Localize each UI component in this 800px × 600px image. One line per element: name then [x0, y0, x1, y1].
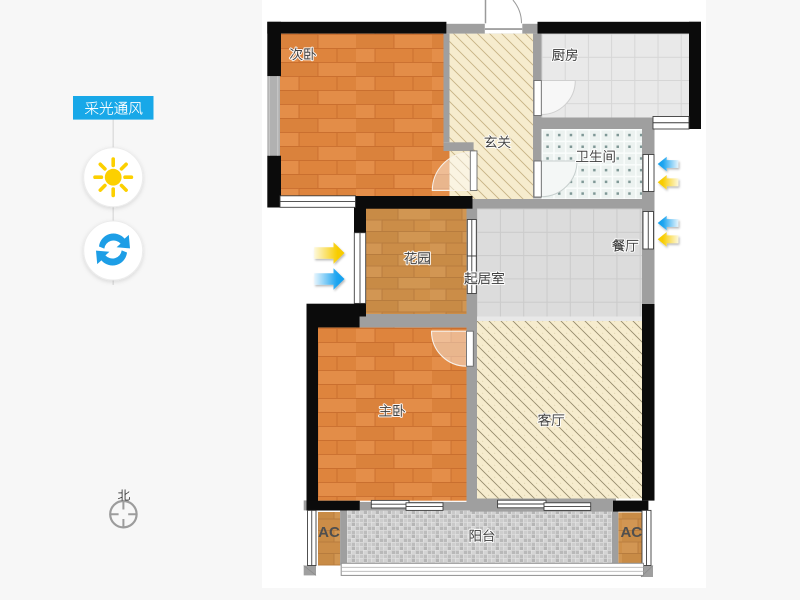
svg-text:AC: AC: [620, 524, 642, 541]
svg-text:AC: AC: [318, 524, 340, 541]
